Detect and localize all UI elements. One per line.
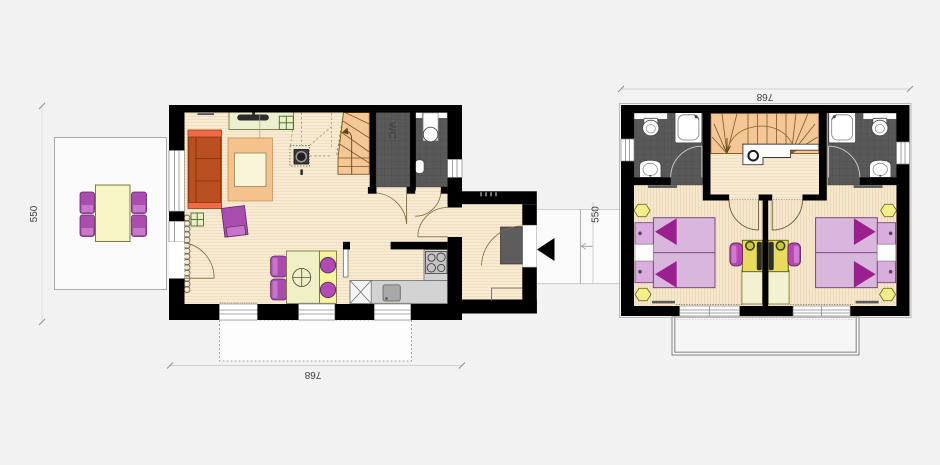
svg-text:WC: WC	[386, 122, 397, 139]
svg-text:550: 550	[591, 206, 602, 223]
svg-text:550: 550	[29, 205, 40, 222]
svg-text:768: 768	[756, 91, 773, 102]
svg-text:768: 768	[304, 369, 321, 380]
